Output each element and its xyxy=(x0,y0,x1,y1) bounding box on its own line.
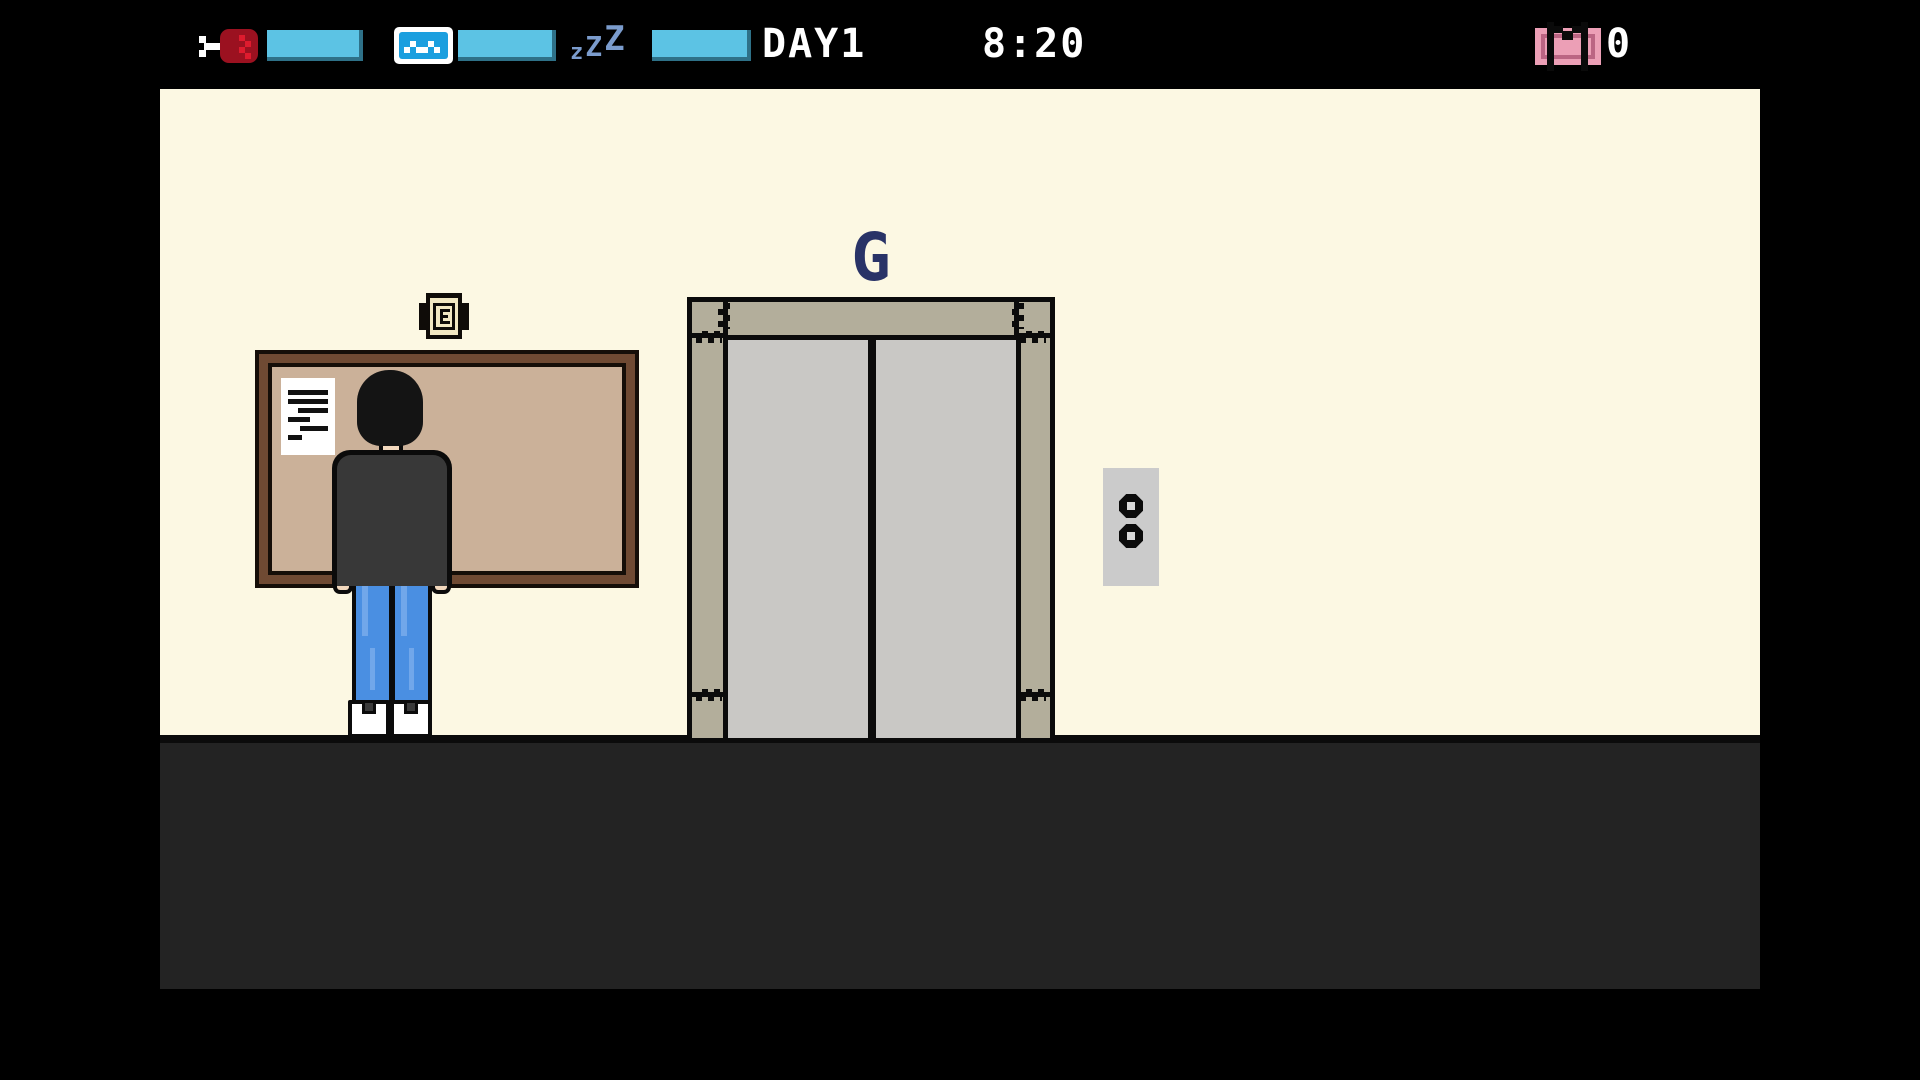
meat-highlight xyxy=(245,41,251,47)
wave-icon xyxy=(394,27,453,64)
jean-highlight xyxy=(362,586,368,636)
money-amount: 0 xyxy=(1606,22,1632,66)
call-down-button-hole xyxy=(1127,532,1135,540)
jean-highlight xyxy=(370,648,375,690)
sleep-letter: Z xyxy=(604,22,624,56)
elevator-door-right[interactable] xyxy=(876,340,1016,738)
call-down-button[interactable] xyxy=(1119,524,1143,548)
call-up-button[interactable] xyxy=(1119,494,1143,518)
happiness-bar xyxy=(458,30,556,61)
wave-pixel xyxy=(434,47,440,53)
paper-text-line xyxy=(288,435,302,440)
energy-bar xyxy=(652,30,751,61)
jean-highlight xyxy=(401,586,407,636)
paper-text-line xyxy=(298,408,328,413)
hallway-floor xyxy=(160,743,1760,989)
paper-text-line xyxy=(288,390,328,395)
wave-icon-face xyxy=(399,32,448,59)
sleep-letter: z xyxy=(570,42,583,64)
wave-pixel xyxy=(422,47,428,53)
note-e-glyph xyxy=(440,321,450,324)
note-e-glyph xyxy=(440,309,450,312)
floor-indicator-label: G xyxy=(821,222,921,294)
elevator-door-left[interactable] xyxy=(728,340,868,738)
paper-text-line xyxy=(288,399,328,404)
hunger-bar xyxy=(267,30,363,61)
elevator-call-panel[interactable] xyxy=(1103,468,1159,586)
meat-highlight xyxy=(245,53,251,59)
shoe-tongue xyxy=(362,700,376,714)
stitch-mark xyxy=(1020,331,1046,343)
player-shirt xyxy=(337,455,447,586)
jean-highlight xyxy=(409,648,414,690)
sleep-letter: Z xyxy=(585,33,602,61)
sleep-zzz-icon: z Z Z xyxy=(570,22,625,64)
stitch-mark xyxy=(696,331,722,343)
player-hair xyxy=(357,370,423,446)
call-up-button-hole xyxy=(1127,502,1135,510)
day-label: DAY1 xyxy=(762,22,866,66)
banknote-m-icon xyxy=(1535,28,1601,65)
stitch-mark xyxy=(1012,303,1024,329)
stitch-mark xyxy=(696,689,722,701)
bone-selector-cursor xyxy=(199,50,206,57)
banknote-m-stem xyxy=(1547,22,1554,71)
banknote-m-stem xyxy=(1581,22,1588,71)
banknote-m-bridge xyxy=(1572,26,1581,33)
clock-time: 8:20 xyxy=(982,22,1086,66)
shoe-tongue xyxy=(404,700,418,714)
bone-selector-cursor xyxy=(199,36,206,43)
stitch-mark xyxy=(1020,689,1046,701)
wave-pixel xyxy=(404,47,410,53)
paper-text-line xyxy=(300,426,328,431)
stitch-mark xyxy=(718,303,730,329)
note-e-glyph xyxy=(440,315,448,318)
banknote-m-dip xyxy=(1562,31,1573,40)
game-stage[interactable]: z Z Z DAY1 8:20 0 G xyxy=(0,0,1920,1080)
paper-text-line xyxy=(288,417,310,422)
meat-icon xyxy=(220,29,258,63)
pinned-paper[interactable] xyxy=(281,378,335,455)
